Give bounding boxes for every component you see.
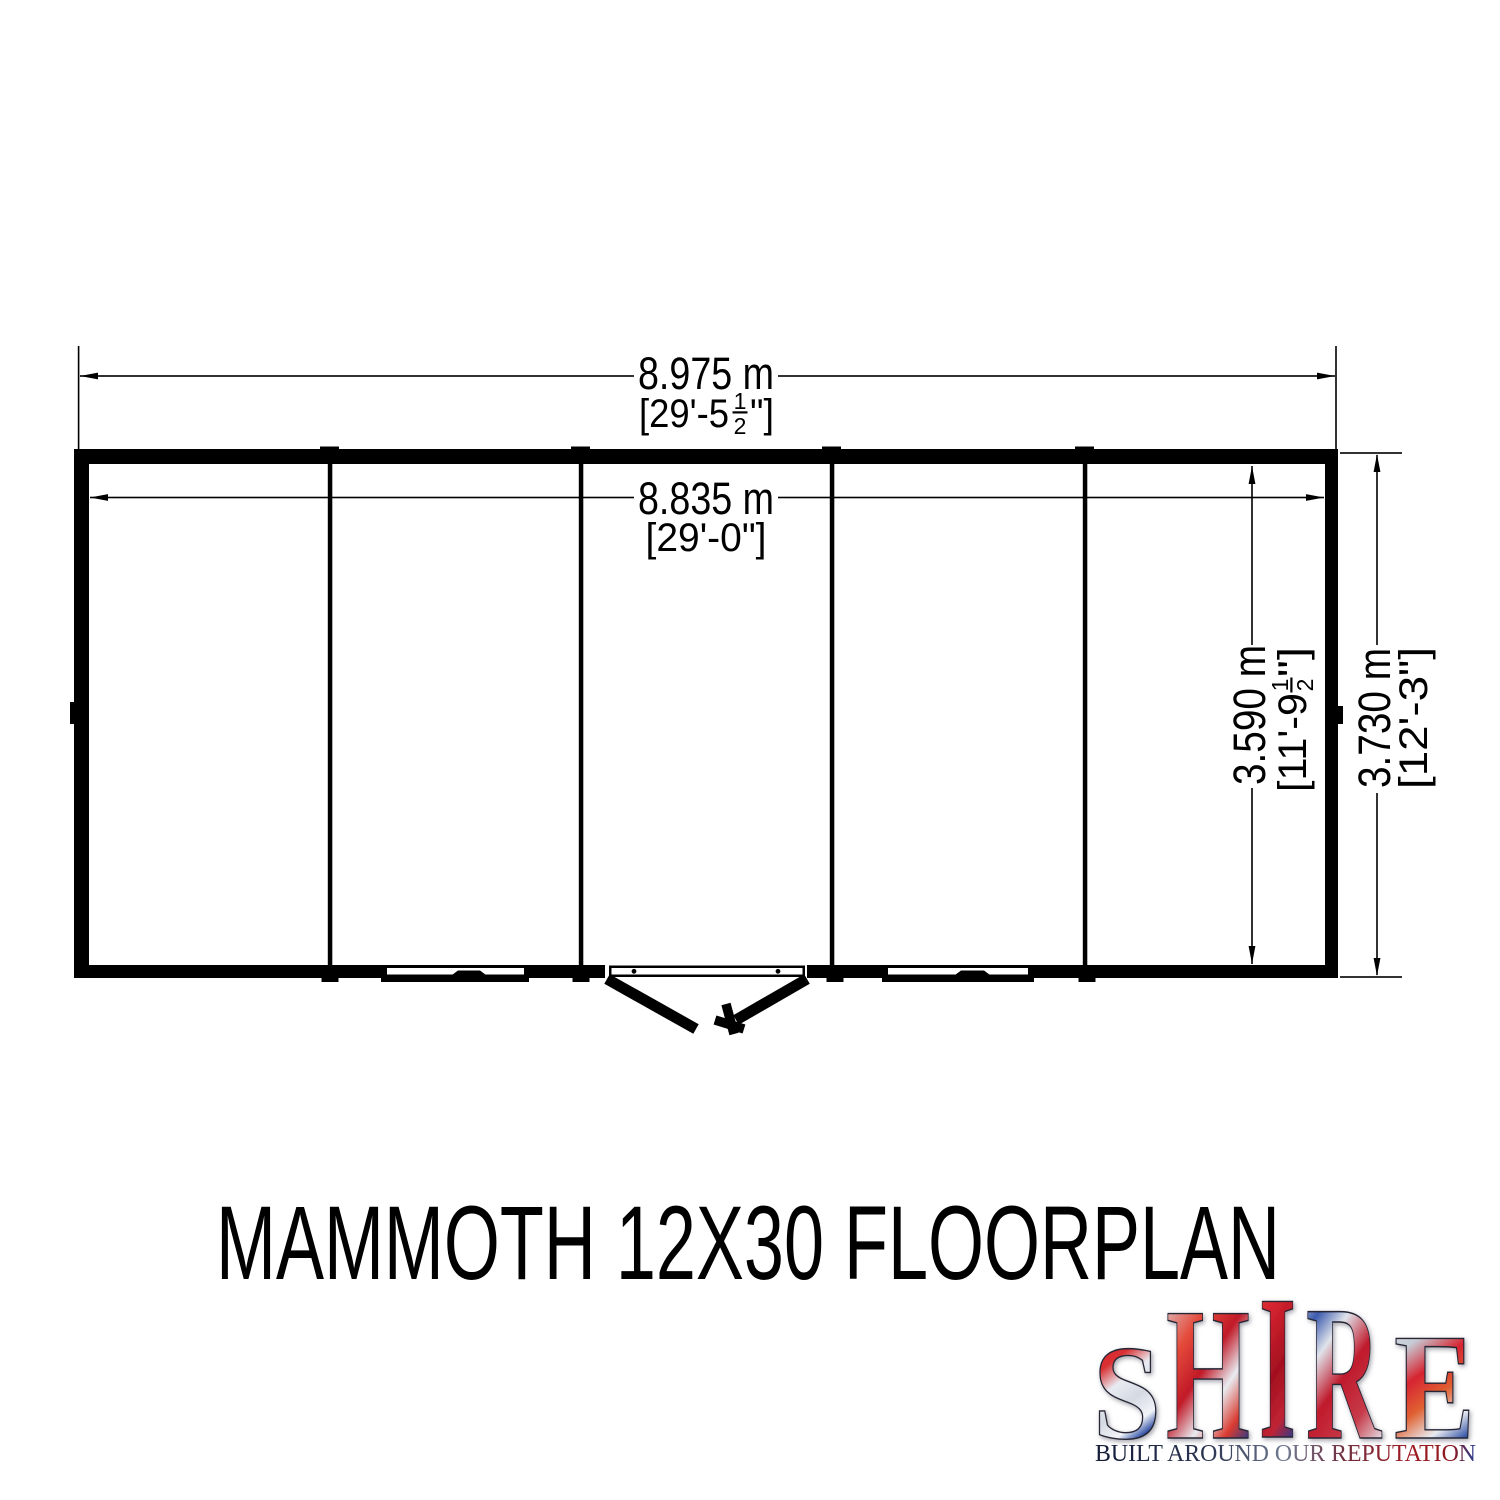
svg-text:"]: "] xyxy=(1271,647,1315,677)
svg-text:3.590 m: 3.590 m xyxy=(1224,645,1275,785)
svg-text:2: 2 xyxy=(1292,679,1318,692)
svg-text:"]: "] xyxy=(750,392,774,436)
svg-text:[12'-3"]: [12'-3"] xyxy=(1392,647,1436,789)
svg-text:[29'-5: [29'-5 xyxy=(639,392,729,436)
svg-text:2: 2 xyxy=(734,413,747,439)
svg-text:1: 1 xyxy=(734,388,747,414)
svg-text:MAMMOTH 12X30 FLOORPLAN: MAMMOTH 12X30 FLOORPLAN xyxy=(216,1185,1280,1302)
svg-text:[11'-9: [11'-9 xyxy=(1271,693,1315,792)
svg-text:BUILT AROUND OUR REPUTATION: BUILT AROUND OUR REPUTATION xyxy=(1095,1440,1476,1467)
svg-text:1: 1 xyxy=(1267,679,1293,692)
svg-text:[29'-0"]: [29'-0"] xyxy=(646,516,767,560)
